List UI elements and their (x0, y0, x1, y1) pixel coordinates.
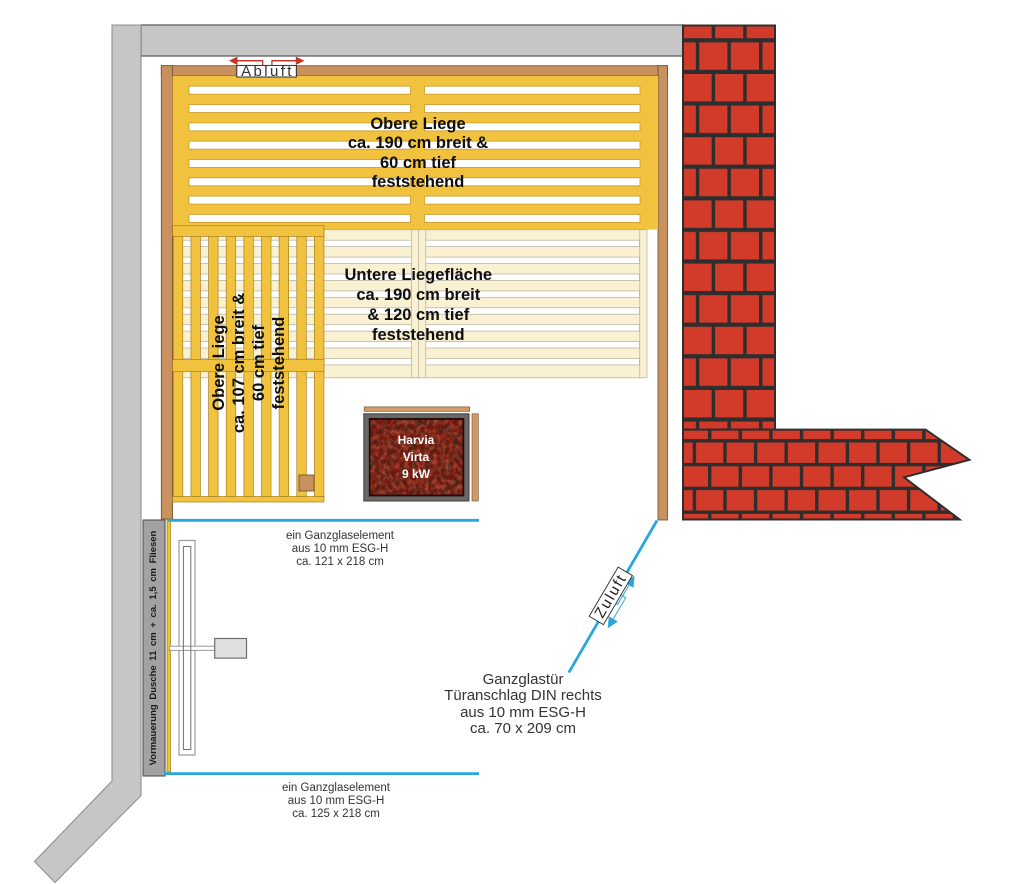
svg-text:Zuluft: Zuluft (591, 571, 630, 621)
